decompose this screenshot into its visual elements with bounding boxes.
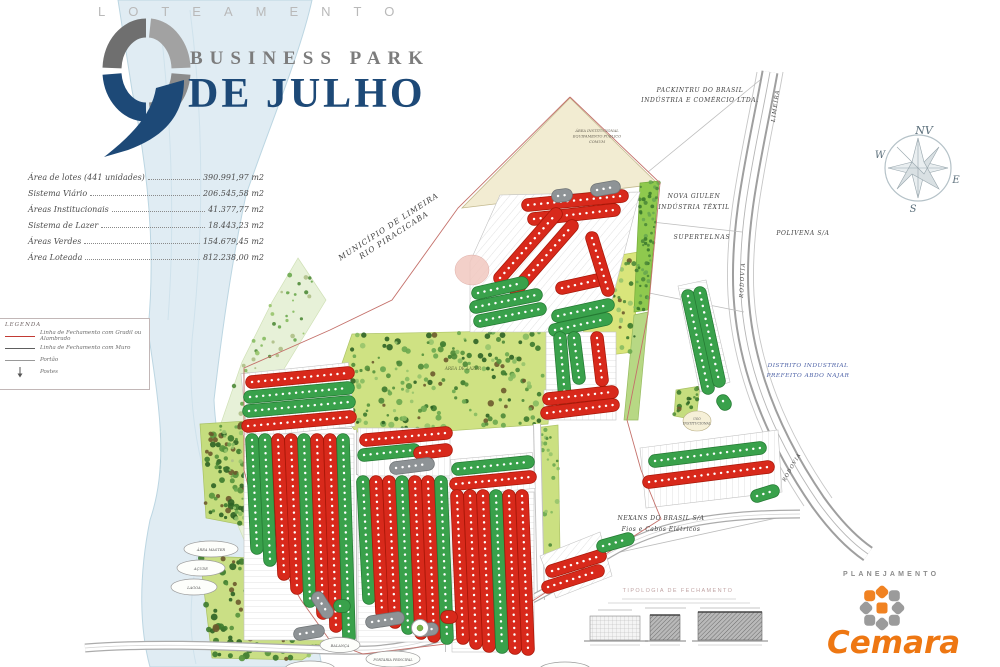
legend-item-label: Portão — [40, 357, 58, 363]
gate-line-icon — [5, 360, 35, 361]
fence-muro-line-icon — [5, 348, 35, 349]
oval-lagoa-label: LAGOA — [186, 586, 201, 590]
legend-item-label: Postes — [40, 369, 58, 375]
compass-n-label: NV — [914, 124, 934, 137]
nova-giulen-label-1: NOVA GIULEN — [667, 193, 721, 200]
stat-row: Áreas Verdes 154.679,45 m2 — [28, 230, 264, 246]
leader-dots — [84, 243, 200, 244]
packintru-label-1: PACKINTRU DO BRASIL — [656, 87, 744, 94]
stat-label: Áreas Verdes — [28, 237, 81, 246]
leader-dots — [112, 211, 205, 212]
packintru-label-2: INDÚSTRIA E COMÉRCIO LTDA. — [640, 96, 759, 104]
site-plan-page: ÁREA MASTER AÇUDE LAGOA BALANÇA PORTARIA… — [0, 0, 1000, 667]
nova-giulen-label-2: INDÚSTRIA TÊXTIL — [657, 203, 729, 211]
de-julho-title: DE JULHO — [188, 70, 426, 118]
stat-label: Área de lotes (441 unidades) — [28, 173, 145, 182]
nexans-label-2: Fios e Cabos Elétricos — [621, 526, 701, 533]
compass-w-label: W — [875, 150, 886, 161]
fence-typology: TIPOLOGIA DE FECHAMENTO — [584, 588, 768, 645]
area-lazer-label: ÁREA DE LAZER — [444, 366, 481, 371]
legend-box: LEGENDA Linha de Fechamento com Gradil o… — [0, 318, 150, 390]
legend-item: Linha de Fechamento com Muro — [5, 342, 149, 354]
compass-rose: NV W E S — [875, 124, 960, 215]
stat-value: 154.679,45 m2 — [203, 237, 264, 246]
leader-dots — [148, 179, 200, 180]
supertelnas-label: SUPERTELNAS — [674, 234, 731, 241]
planejamento-heading: PLANEJAMENTO — [843, 571, 939, 578]
uso-label-2: INSTITUCIONAL — [682, 422, 711, 426]
leader-dots — [90, 195, 200, 196]
legend-item-label: Linha de Fechamento com Muro — [40, 345, 130, 351]
stat-label: Áreas Institucionais — [28, 205, 109, 214]
stat-label: Sistema Viário — [28, 189, 87, 198]
municipio-label-1: MUNICÍPIO DE LIMEIRA — [336, 191, 441, 263]
inst-label-1: ÁREA INSTITUCIONAL — [574, 128, 619, 133]
cemara-wordmark: Cemara — [827, 625, 960, 661]
polivena-label: POLIVENA S/A — [775, 230, 829, 237]
stat-label: Sistema de Lazer — [28, 221, 98, 230]
nexans-label-1: NEXANS DO BRASIL S/A — [616, 515, 704, 522]
stat-row: Sistema Viário 206.545,58 m2 — [28, 182, 264, 198]
uso-label-1: USO — [693, 417, 701, 421]
legend-title: LEGENDA — [5, 322, 149, 328]
stat-row: Áreas Institucionais 41.377,77 m2 — [28, 198, 264, 214]
leader-dots — [85, 259, 200, 260]
stat-label: Área Loteada — [28, 253, 82, 262]
stat-value: 812.238,00 m2 — [203, 253, 264, 262]
typology-title: TIPOLOGIA DE FECHAMENTO — [623, 588, 734, 594]
stat-value: 206.545,58 m2 — [203, 189, 264, 198]
distrito-label-1: DISTRITO INDUSTRIAL — [767, 363, 849, 369]
compass-s-label: S — [910, 204, 917, 215]
inst-label-3: COMUM — [589, 140, 605, 144]
stat-value: 41.377,77 m2 — [208, 205, 264, 214]
legend-item: Linha de Fechamento com Gradil ou Alambr… — [5, 330, 149, 342]
compass-e-label: E — [951, 175, 960, 186]
stat-value: 390.991,97 m2 — [203, 173, 264, 182]
business-park-title: BUSINESS PARK — [190, 48, 430, 70]
oval-acude-label: AÇUDE — [193, 567, 208, 571]
fence-gradil-line-icon — [5, 336, 35, 337]
oval-balanca-label: BALANÇA — [330, 644, 350, 648]
stat-value: 18.443,23 m2 — [208, 221, 264, 230]
stat-row: Sistema de Lazer 18.443,23 m2 — [28, 214, 264, 230]
area-statistics: Área de lotes (441 unidades) 390.991,97 … — [28, 166, 264, 262]
loteamento-heading: LOTEAMENTO — [98, 4, 417, 19]
inst-label-2: EQUIPAMENTO PÚBLICO — [572, 134, 621, 139]
distrito-label-2: PREFEITO ABDO NAJAR — [766, 373, 850, 379]
post-arrow-icon — [5, 367, 35, 378]
legend-item: Portão — [5, 354, 149, 366]
plaza-circle — [455, 255, 489, 285]
legend-item-label: Linha de Fechamento com Gradil ou Alambr… — [40, 330, 149, 342]
oval-area-master-label: ÁREA MASTER — [196, 547, 225, 552]
leader-dots — [101, 227, 205, 228]
stat-row: Área de lotes (441 unidades) 390.991,97 … — [28, 166, 264, 182]
stat-row: Área Loteada 812.238,00 m2 — [28, 246, 264, 262]
legend-item: Postes — [5, 366, 149, 378]
entrance-roundabout — [412, 620, 429, 637]
oval-portaria-label: PORTARIA PRINCIPAL — [372, 658, 413, 662]
